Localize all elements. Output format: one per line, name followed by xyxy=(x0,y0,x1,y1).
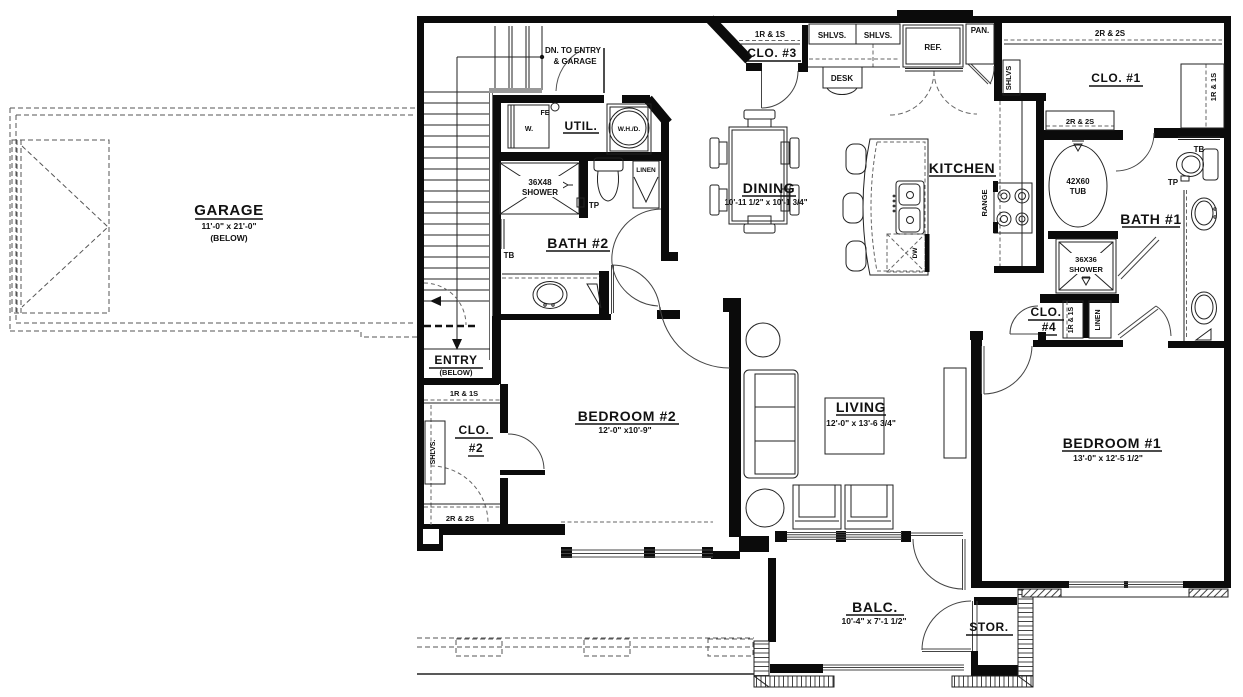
svg-text:CLO. #3: CLO. #3 xyxy=(747,46,797,60)
svg-text:BEDROOM #2: BEDROOM #2 xyxy=(578,408,677,424)
svg-text:DW: DW xyxy=(912,247,919,259)
svg-text:(BELOW): (BELOW) xyxy=(440,368,473,377)
svg-text:2R & 2S: 2R & 2S xyxy=(446,514,474,523)
svg-text:TB: TB xyxy=(504,251,515,260)
svg-text:DN. TO ENTRY: DN. TO ENTRY xyxy=(545,46,602,55)
svg-text:& GARAGE: & GARAGE xyxy=(553,57,597,66)
svg-text:TP: TP xyxy=(1168,178,1179,187)
svg-text:W.H./D.: W.H./D. xyxy=(618,126,641,133)
svg-text:1R & 1S: 1R & 1S xyxy=(1209,73,1218,101)
svg-text:BALC.: BALC. xyxy=(852,599,898,615)
svg-text:1R & 1S: 1R & 1S xyxy=(755,30,786,39)
svg-text:LINEN: LINEN xyxy=(636,167,656,174)
svg-text:TB: TB xyxy=(1194,145,1205,154)
svg-text:SHLVS.: SHLVS. xyxy=(818,31,846,40)
svg-text:CLO. #1: CLO. #1 xyxy=(1091,71,1141,85)
svg-text:1R & 1S: 1R & 1S xyxy=(450,389,478,398)
svg-text:GARAGE: GARAGE xyxy=(194,202,263,219)
svg-text:SHLVS.: SHLVS. xyxy=(864,31,892,40)
svg-text:2R & 2S: 2R & 2S xyxy=(1095,29,1126,38)
svg-text:1R & 1S: 1R & 1S xyxy=(1068,306,1075,333)
svg-text:STOR.: STOR. xyxy=(969,620,1008,634)
svg-text:#2: #2 xyxy=(469,441,484,455)
svg-text:LIVING: LIVING xyxy=(836,399,886,415)
svg-text:36X36: 36X36 xyxy=(1075,255,1097,264)
svg-text:36X48: 36X48 xyxy=(528,178,552,187)
svg-text:RANGE: RANGE xyxy=(980,189,989,216)
svg-text:#4: #4 xyxy=(1042,320,1057,334)
svg-text:LINEN: LINEN xyxy=(1095,310,1102,331)
svg-text:12'-0" x10'-9": 12'-0" x10'-9" xyxy=(598,425,651,435)
svg-text:10'-4" x 7'-1 1/2": 10'-4" x 7'-1 1/2" xyxy=(841,616,906,626)
svg-text:CLO.: CLO. xyxy=(458,423,489,437)
svg-text:11'-0" x 21'-0": 11'-0" x 21'-0" xyxy=(201,221,256,231)
svg-text:SHOWER: SHOWER xyxy=(522,188,558,197)
svg-text:CLO.: CLO. xyxy=(1030,305,1061,319)
svg-text:DESK: DESK xyxy=(831,74,853,83)
svg-text:TP: TP xyxy=(589,201,600,210)
svg-text:10'-11 1/2" x 10'-1 3/4": 10'-11 1/2" x 10'-1 3/4" xyxy=(724,198,807,207)
svg-text:FE: FE xyxy=(541,110,550,117)
svg-text:BATH #2: BATH #2 xyxy=(547,235,609,251)
svg-text:12'-0" x 13'-6 3/4": 12'-0" x 13'-6 3/4" xyxy=(826,418,896,428)
svg-text:BATH #1: BATH #1 xyxy=(1120,211,1182,227)
svg-text:ENTRY: ENTRY xyxy=(434,353,477,367)
svg-text:DINING: DINING xyxy=(743,180,796,196)
svg-text:(BELOW): (BELOW) xyxy=(210,233,247,243)
svg-text:UTIL.: UTIL. xyxy=(565,119,598,133)
svg-text:SHLVS.: SHLVS. xyxy=(430,440,437,465)
svg-text:W.: W. xyxy=(525,126,533,133)
svg-text:SHOWER: SHOWER xyxy=(1069,265,1103,274)
svg-text:42X60: 42X60 xyxy=(1066,177,1090,186)
svg-text:SHLVS: SHLVS xyxy=(1004,66,1013,90)
svg-text:BEDROOM #1: BEDROOM #1 xyxy=(1063,435,1162,451)
svg-text:REF.: REF. xyxy=(924,43,941,52)
svg-text:TUB: TUB xyxy=(1070,187,1087,196)
svg-text:KITCHEN: KITCHEN xyxy=(929,160,995,176)
svg-text:13'-0" x 12'-5 1/2": 13'-0" x 12'-5 1/2" xyxy=(1073,453,1143,463)
svg-text:PAN.: PAN. xyxy=(971,26,990,35)
svg-text:2R & 2S: 2R & 2S xyxy=(1066,117,1094,126)
